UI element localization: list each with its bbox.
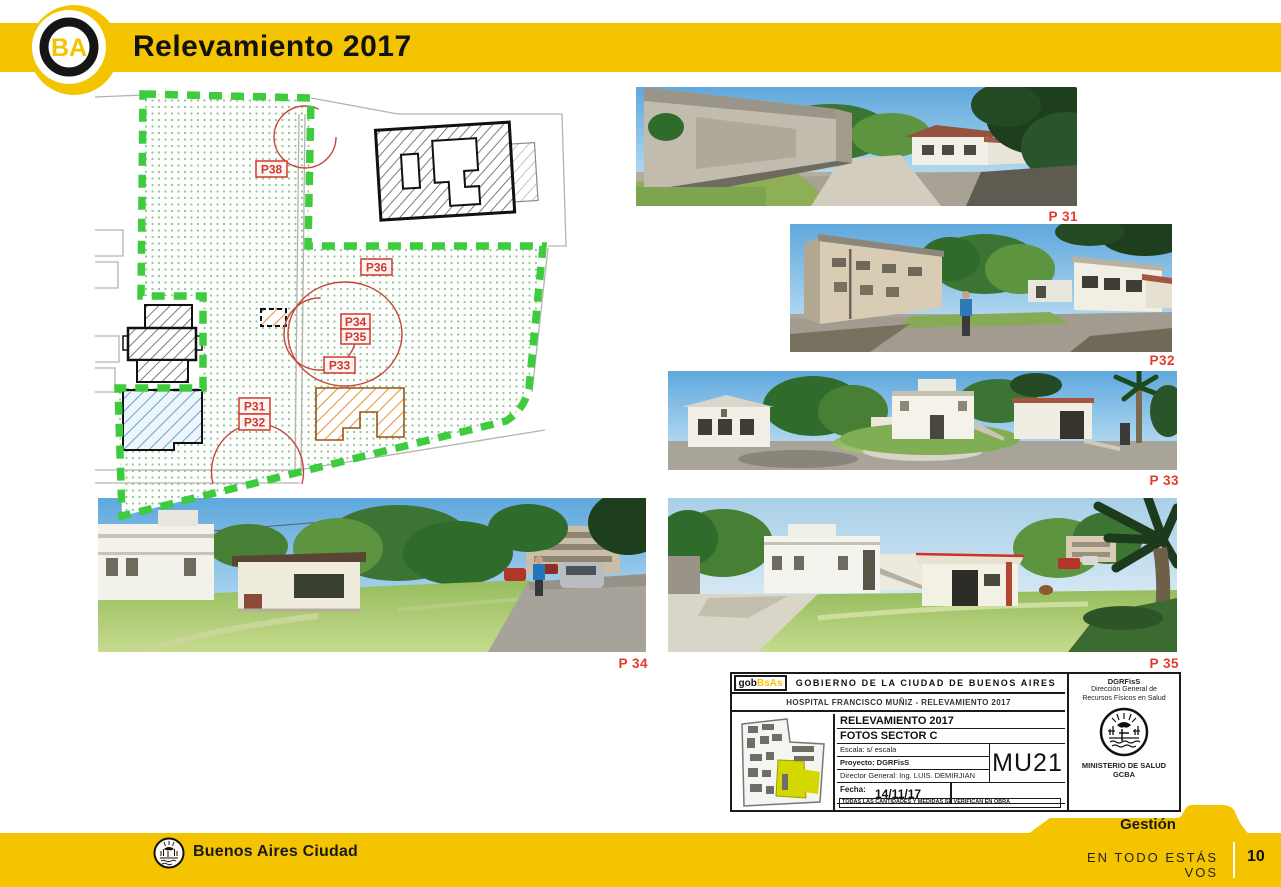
plan-building-hatched-large [375, 121, 538, 220]
ministry-label: MINISTERIO DE SALUD [1069, 761, 1179, 770]
fecha-label: Fecha: [840, 785, 866, 794]
key-map-cell [732, 714, 835, 810]
photo-label-p31: P 31 [1040, 209, 1078, 224]
footer-divider [1233, 842, 1235, 878]
slide-page: BA Relevamiento 2017 P 31 [0, 0, 1281, 887]
photo-p33 [668, 371, 1177, 470]
svg-text:P34: P34 [345, 315, 367, 329]
bsas-text: BsAs [757, 678, 783, 689]
svg-text:BA: BA [51, 34, 87, 62]
svg-text:P36: P36 [366, 261, 388, 275]
sheet-title-1: RELEVAMIENTO 2017 [837, 714, 1065, 729]
page-number: 10 [1247, 848, 1265, 866]
plan-building-hatched-left [123, 305, 202, 382]
title-block-header-row: gobBsAs GOBIERNO DE LA CIUDAD DE BUENOS … [732, 674, 1065, 694]
photo-label-p32: P32 [1137, 353, 1175, 368]
sheet-code: MU21 [989, 744, 1065, 782]
photo-p32 [790, 224, 1172, 352]
org-label: GCBA [1069, 770, 1179, 779]
page-title: Relevamiento 2017 [133, 30, 412, 64]
gestion-label: Gestión [1108, 816, 1188, 833]
sheet-title-2: FOTOS SECTOR C [837, 729, 1065, 744]
escala-row: Escala: s/ escala [837, 744, 989, 757]
government-title: GOBIERNO DE LA CIUDAD DE BUENOS AIRES [787, 678, 1065, 688]
dept-code: DGRFisS [1069, 677, 1179, 686]
plan-building-blue [123, 390, 202, 450]
title-block-fields: RELEVAMIENTO 2017 FOTOS SECTOR C Escala:… [837, 714, 1065, 810]
photo-p35 [668, 498, 1177, 652]
dept-name-1: Dirección General de [1069, 686, 1179, 695]
plan-label-p33: P33 [324, 357, 355, 373]
plan-label-p32: P32 [239, 414, 270, 430]
plan-building-orange-small [261, 309, 286, 326]
gob-text: gob [739, 678, 757, 689]
site-plan: P38 P36 P34 P35 P33 P31 [90, 84, 580, 530]
gobbsas-logo: gobBsAs [734, 675, 787, 691]
plan-label-p34: P34 [341, 314, 370, 329]
svg-text:P38: P38 [261, 163, 283, 177]
city-seal-icon [152, 836, 186, 870]
svg-text:P32: P32 [244, 416, 266, 430]
key-map [732, 714, 833, 812]
photo-p31 [636, 87, 1077, 206]
director-row: Director General: Ing. LUIS. DEMIRJIAN [837, 770, 989, 783]
title-block-right-column: DGRFisS Dirección General de Recursos Fí… [1067, 674, 1179, 810]
plan-label-p38: P38 [256, 161, 287, 177]
footer-slogan: EN TODO ESTÁS VOS [1060, 850, 1218, 880]
plan-label-p35: P35 [341, 329, 370, 344]
title-block-left: gobBsAs GOBIERNO DE LA CIUDAD DE BUENOS … [732, 674, 1065, 810]
gcba-seal-icon [1097, 705, 1151, 759]
footer-brand: Buenos Aires Ciudad [193, 843, 358, 861]
photo-label-p33: P 33 [1141, 473, 1179, 488]
project-line: HOSPITAL FRANCISCO MUÑIZ - RELEVAMIENTO … [732, 694, 1065, 712]
proyecto-row: Proyecto: DGRFisS [837, 757, 989, 770]
title-block: DGRFisS Dirección General de Recursos Fí… [730, 672, 1181, 812]
plan-label-p36: P36 [361, 259, 392, 275]
plan-label-p31: P31 [239, 398, 270, 414]
dept-name-2: Recursos Físicos en Salud [1069, 695, 1179, 704]
svg-text:P35: P35 [345, 330, 367, 344]
svg-text:P33: P33 [329, 359, 351, 373]
photo-label-p35: P 35 [1141, 656, 1179, 671]
photo-label-p34: P 34 [610, 656, 648, 671]
svg-text:P31: P31 [244, 400, 266, 414]
